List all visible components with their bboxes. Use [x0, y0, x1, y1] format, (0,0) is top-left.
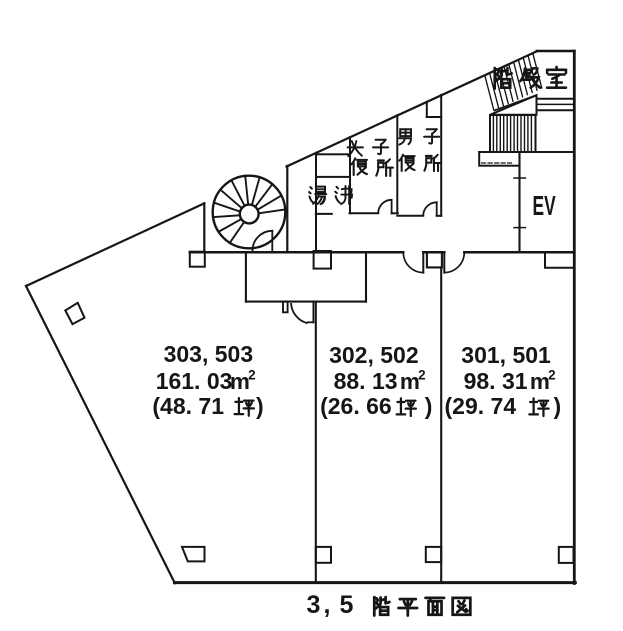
svg-text:3: 3 [307, 591, 321, 619]
svg-text:): ) [256, 393, 264, 419]
svg-text:161. 03: 161. 03 [156, 368, 233, 394]
svg-text:): ) [425, 393, 433, 419]
svg-text:,: , [324, 591, 331, 619]
svg-text:301, 501: 301, 501 [461, 342, 551, 368]
svg-text:(48. 71: (48. 71 [152, 393, 224, 419]
svg-text:303, 503: 303, 503 [164, 341, 254, 367]
svg-text:m: m [530, 369, 550, 394]
svg-text:2: 2 [248, 368, 256, 383]
svg-text:2: 2 [548, 368, 556, 383]
svg-text:(26. 66: (26. 66 [320, 393, 392, 419]
svg-text:m: m [230, 369, 250, 394]
svg-text:(29. 74: (29. 74 [445, 393, 517, 419]
svg-text:): ) [554, 393, 562, 419]
svg-text:5: 5 [340, 591, 354, 619]
svg-text:2: 2 [418, 368, 426, 383]
svg-text:98. 31: 98. 31 [464, 368, 528, 394]
svg-text:EV: EV [533, 190, 556, 221]
svg-text:88. 13: 88. 13 [334, 368, 398, 394]
svg-text:302, 502: 302, 502 [329, 342, 419, 368]
svg-text:m: m [400, 369, 420, 394]
